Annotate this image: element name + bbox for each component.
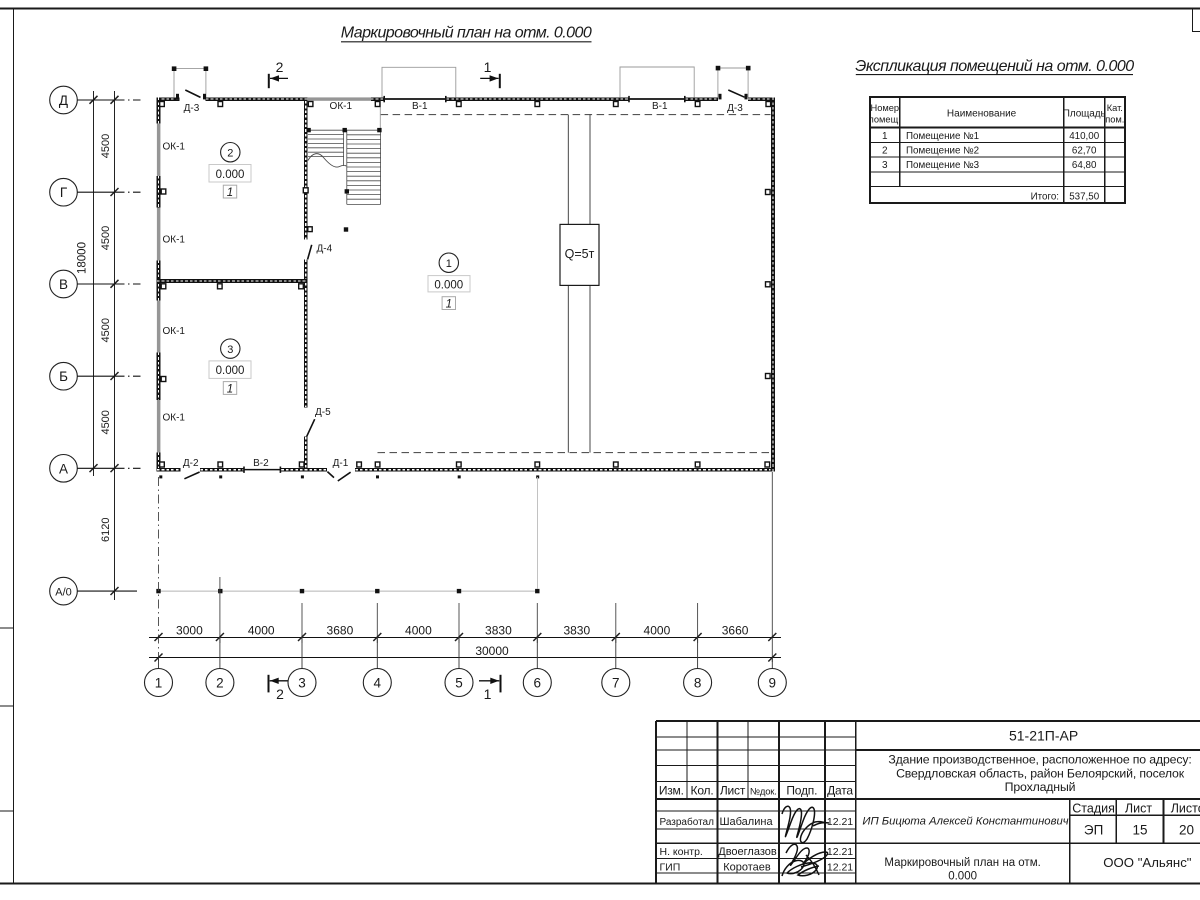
- svg-text:4500: 4500: [100, 226, 112, 250]
- svg-text:4500: 4500: [100, 134, 112, 158]
- svg-text:Помещение №3: Помещение №3: [906, 160, 980, 171]
- svg-text:6: 6: [534, 676, 542, 691]
- svg-text:Помещение №2: Помещение №2: [906, 146, 979, 157]
- svg-text:Маркировочный план на отм.: Маркировочный план на отм.: [884, 857, 1040, 869]
- svg-text:20: 20: [1179, 823, 1194, 838]
- svg-text:Д-1: Д-1: [333, 458, 349, 469]
- svg-text:1: 1: [446, 258, 452, 270]
- svg-text:Номер: Номер: [870, 103, 899, 113]
- svg-text:Дата: Дата: [827, 784, 853, 798]
- svg-text:7: 7: [612, 676, 620, 691]
- svg-text:А: А: [59, 461, 68, 476]
- svg-text:2: 2: [276, 686, 284, 702]
- svg-text:3830: 3830: [485, 623, 512, 637]
- svg-text:ОК-1: ОК-1: [330, 101, 353, 112]
- svg-text:Экспликация помещений на отм.: Экспликация помещений на отм. 0.000: [855, 58, 1134, 75]
- svg-text:Двоеглазов: Двоеглазов: [718, 846, 777, 858]
- svg-text:2: 2: [276, 59, 284, 75]
- svg-text:2: 2: [227, 147, 233, 159]
- svg-text:5: 5: [455, 676, 463, 691]
- svg-text:ОК-1: ОК-1: [163, 413, 186, 424]
- svg-text:Д-3: Д-3: [184, 103, 200, 114]
- svg-text:Д-5: Д-5: [315, 407, 331, 418]
- svg-text:пом.: пом.: [1105, 115, 1124, 125]
- svg-text:1: 1: [484, 59, 492, 75]
- svg-text:Итого:: Итого:: [1031, 192, 1059, 203]
- svg-text:ГИП: ГИП: [660, 862, 681, 874]
- svg-text:Прохладный: Прохладный: [1005, 780, 1076, 794]
- svg-text:3680: 3680: [327, 623, 354, 637]
- svg-text:1: 1: [882, 131, 888, 142]
- svg-text:30000: 30000: [475, 644, 509, 658]
- svg-text:2: 2: [882, 146, 888, 157]
- svg-text:В-1: В-1: [652, 101, 668, 112]
- svg-text:1: 1: [446, 299, 452, 311]
- svg-text:Д: Д: [59, 93, 68, 108]
- svg-text:410,00: 410,00: [1069, 131, 1100, 142]
- svg-text:3: 3: [227, 344, 233, 356]
- svg-text:Здание производственное, распо: Здание производственное, расположенное п…: [888, 753, 1191, 767]
- svg-text:3000: 3000: [176, 623, 203, 637]
- svg-text:0.000: 0.000: [434, 279, 463, 291]
- svg-text:12.21: 12.21: [827, 816, 853, 828]
- svg-text:64,80: 64,80: [1072, 160, 1097, 171]
- svg-text:Д-3: Д-3: [727, 103, 743, 114]
- svg-text:8: 8: [694, 676, 702, 691]
- svg-text:1: 1: [227, 187, 233, 199]
- svg-text:Д-4: Д-4: [317, 244, 333, 255]
- svg-text:0.000: 0.000: [216, 365, 245, 377]
- svg-text:В: В: [59, 277, 68, 292]
- svg-text:4500: 4500: [100, 318, 112, 342]
- svg-text:0.000: 0.000: [948, 871, 977, 883]
- svg-text:Подп.: Подп.: [786, 784, 817, 798]
- svg-text:9: 9: [769, 676, 777, 691]
- svg-text:Г: Г: [60, 185, 68, 200]
- svg-text:Н. контр.: Н. контр.: [660, 846, 703, 858]
- svg-text:ООО "Альянс": ООО "Альянс": [1103, 855, 1191, 870]
- svg-text:4500: 4500: [100, 410, 112, 434]
- svg-text:Помещение №1: Помещение №1: [906, 131, 979, 142]
- svg-text:Коротаев: Коротаев: [723, 862, 771, 874]
- svg-text:№док.: №док.: [750, 787, 777, 798]
- svg-text:4000: 4000: [248, 623, 275, 637]
- svg-text:Q=5т: Q=5т: [565, 247, 595, 261]
- svg-text:ЭП: ЭП: [1084, 823, 1103, 838]
- svg-text:3830: 3830: [563, 623, 590, 637]
- svg-text:2: 2: [216, 676, 224, 691]
- svg-text:51-21П-АР: 51-21П-АР: [1009, 728, 1078, 744]
- svg-text:помещ.: помещ.: [869, 115, 901, 125]
- svg-text:3: 3: [882, 160, 888, 171]
- svg-text:12.21: 12.21: [827, 846, 853, 858]
- svg-text:Д-2: Д-2: [183, 458, 199, 469]
- svg-text:4000: 4000: [644, 623, 671, 637]
- svg-text:Разработал: Разработал: [660, 816, 715, 828]
- svg-text:Б: Б: [59, 369, 68, 384]
- svg-text:1: 1: [227, 383, 233, 395]
- svg-text:Площадь: Площадь: [1063, 109, 1106, 120]
- svg-text:0.000: 0.000: [216, 169, 245, 181]
- svg-text:12.21: 12.21: [827, 862, 853, 874]
- svg-text:4: 4: [374, 676, 382, 691]
- svg-text:537,50: 537,50: [1069, 192, 1100, 203]
- svg-text:А/0: А/0: [55, 586, 72, 598]
- svg-text:Лист: Лист: [1125, 802, 1152, 816]
- svg-text:Кол.: Кол.: [691, 784, 714, 798]
- svg-text:В-1: В-1: [412, 101, 428, 112]
- svg-text:1: 1: [484, 686, 492, 702]
- svg-text:Лист: Лист: [720, 784, 746, 798]
- svg-text:ОК-1: ОК-1: [163, 142, 186, 153]
- svg-text:Кат.: Кат.: [1107, 103, 1123, 113]
- svg-text:Свердловская область, район Бе: Свердловская область, район Белоярский, …: [896, 766, 1185, 780]
- svg-text:ОК-1: ОК-1: [163, 326, 186, 337]
- svg-text:ОК-1: ОК-1: [163, 235, 186, 246]
- svg-text:6120: 6120: [100, 517, 112, 541]
- svg-text:Стадия: Стадия: [1072, 802, 1115, 816]
- svg-text:В-2: В-2: [253, 458, 269, 469]
- svg-text:3: 3: [298, 676, 306, 691]
- svg-text:Шабалина: Шабалина: [719, 816, 773, 828]
- svg-text:3660: 3660: [722, 623, 749, 637]
- svg-text:Маркировочный план на отм. 0.0: Маркировочный план на отм. 0.000: [341, 25, 592, 42]
- svg-text:Листов: Листов: [1171, 802, 1200, 816]
- svg-text:1: 1: [155, 676, 163, 691]
- svg-text:18000: 18000: [77, 242, 89, 274]
- svg-text:Наименование: Наименование: [947, 109, 1017, 120]
- svg-text:15: 15: [1132, 823, 1147, 838]
- svg-text:Изм.: Изм.: [659, 784, 684, 798]
- svg-text:62,70: 62,70: [1072, 146, 1097, 157]
- svg-text:ИП Бицюта Алексей Константинов: ИП Бицюта Алексей Константинович: [862, 816, 1068, 828]
- svg-text:4000: 4000: [405, 623, 432, 637]
